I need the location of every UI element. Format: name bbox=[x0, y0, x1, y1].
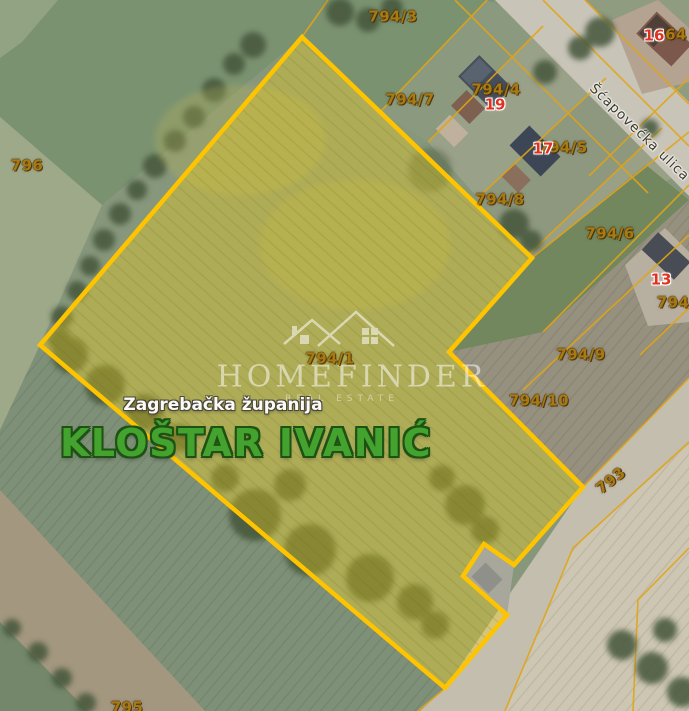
parcel-number-label: 795 bbox=[111, 701, 144, 711]
parcel-number-label: 794/8 bbox=[475, 193, 524, 208]
house-number-label: 19 bbox=[485, 98, 506, 113]
map-canvas[interactable]: HOMEFINDER REAL ESTATE Zagrebačka župani… bbox=[0, 0, 689, 711]
parcel-number-label: 794/6 bbox=[585, 227, 634, 242]
parcel-number-label: 794/7 bbox=[385, 93, 434, 108]
parcel-number-label: 793 bbox=[594, 465, 629, 497]
parcel-number-label: 794/3 bbox=[368, 10, 417, 25]
parcel-number-label: 796 bbox=[11, 159, 44, 174]
house-number-label: 16 bbox=[644, 29, 665, 44]
parcel-number-label: 64 bbox=[665, 28, 687, 43]
parcel-number-label: 794/9 bbox=[556, 348, 605, 363]
parcel-number-label: 794/ bbox=[657, 296, 689, 311]
parcel-number-label: 794/1 bbox=[305, 352, 354, 367]
house-number-label: 13 bbox=[651, 273, 672, 288]
house-number-label: 17 bbox=[533, 142, 554, 157]
street-name-label: Šćapovećka ulica bbox=[587, 82, 689, 184]
map-labels-layer: 794/3794/7794/419794/5171664794/8794/613… bbox=[0, 0, 689, 711]
parcel-number-label: 794/10 bbox=[509, 394, 569, 409]
